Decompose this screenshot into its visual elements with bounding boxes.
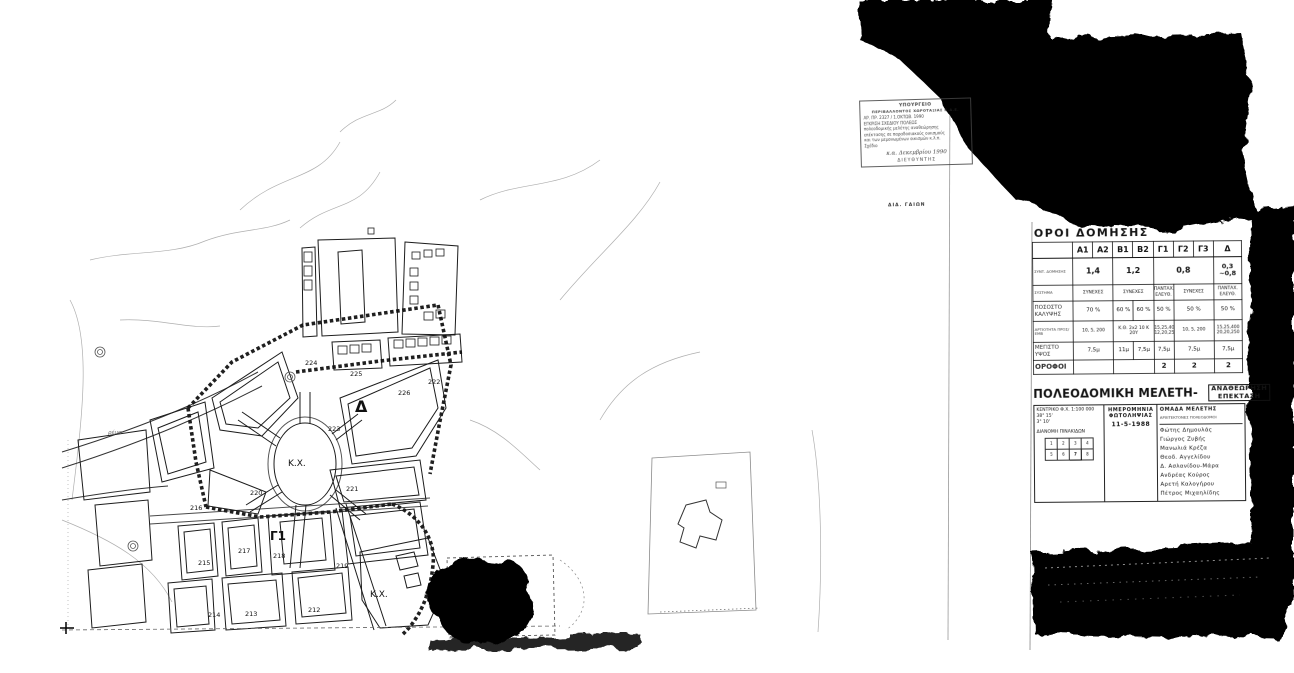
row-label: ΑΡΤΙΟΤΗΤΑ ΠΡΟΣ/ΕΜΒ [1033, 321, 1073, 342]
cell: 0,3 ~0,8 [1213, 257, 1241, 284]
cell: 7,5μ [1214, 341, 1242, 359]
block-number-label: 212 [308, 606, 320, 614]
col-header: Γ1 [1153, 241, 1173, 257]
row-label: ΜΕΓΙΣΤΟ ΥΨΟΣ [1033, 342, 1073, 360]
block-number-label: 213 [245, 610, 257, 618]
col-header: Γ2 [1173, 241, 1193, 257]
grid-cell: 3 [1069, 438, 1081, 449]
title-block-left: ΚΕΝΤΡΙΚΟ Φ.Χ. 1:100 000 38° 15' 3° 10' Δ… [1034, 405, 1105, 502]
cell: ΠΑΝΤΑΧ. ΕΛΕΥΘ. [1153, 284, 1173, 300]
photo-date-value: 11-5-1988 [1107, 422, 1155, 428]
table-row: ΜΕΓΙΣΤΟ ΥΨΟΣ 7,5μ 11μ 7,5μ 7,5μ 7,5μ 7,5… [1033, 341, 1242, 361]
block-number-label: 219 [336, 562, 348, 570]
cell: 0,8 [1153, 257, 1214, 285]
table-header-row: Α1 Α2 Β1 Β2 Γ1 Γ2 Γ3 Δ [1032, 241, 1241, 259]
cell: ΣΥΝΕΧΕΣ [1073, 285, 1113, 301]
cell: 50 % [1174, 300, 1214, 320]
grid-cell: 6 [1057, 449, 1069, 460]
cell: 7,5μ [1073, 342, 1113, 360]
corner-cell [1032, 242, 1072, 258]
block-number-label: 222 [428, 378, 440, 386]
table-row: ΣΥΝΤ. ΔΟΜΗΣΗΣ 1,4 1,2 0,8 0,3 ~0,8 [1033, 257, 1242, 286]
title-block-middle: ΗΜΕΡΟΜΗΝΙΑ ΦΩΤΟΛΗΨΙΑΣ 11-5-1988 [1105, 405, 1159, 501]
cell: 70 % [1073, 301, 1113, 321]
block-number-label: 220 [250, 489, 262, 497]
plate-index-grid: 1 2 3 4 5 6 7 8 [1045, 437, 1094, 460]
cell: Κ.Θ. 2x2 10 Κ 20Υ [1113, 320, 1153, 341]
photo-date-heading2: ΦΩΤΟΛΗΨΙΑΣ [1107, 413, 1155, 419]
block-number-label: 224 [305, 359, 317, 367]
cell: 2 [1174, 359, 1214, 373]
cell: 15,25,400 20,20,250 [1214, 320, 1242, 341]
col-header: Β1 [1113, 242, 1133, 258]
grid-row: 1 2 3 4 [1045, 438, 1093, 449]
block-number-label: 217 [238, 547, 250, 555]
team-member-list: Φώτης Δημουλάς Γιώργος Ζυβής Μανωλιά Κρέ… [1160, 423, 1243, 499]
table-row: ΠΟΣΟΣΤΟ ΚΑΛΥΨΗΣ 70 % 60 % 60 % 50 % 50 %… [1033, 300, 1242, 322]
team-member: Πέτρος Μιχαηλίδης [1160, 489, 1243, 499]
cell: 10, 5, 200 [1073, 321, 1113, 342]
team-subheading: ΑΡΧΙΤΕΚΤΟΝΕΣ ΠΟΛΕΟΔΟΜΟΙ [1160, 414, 1243, 421]
grid-cell: 5 [1045, 449, 1057, 460]
row-label: ΟΡΟΦΟΙ [1033, 360, 1073, 374]
cell: 7,5μ [1134, 341, 1154, 359]
cell: 15,25,400 12,20,250 [1154, 320, 1174, 341]
cell: 2 [1154, 359, 1174, 373]
block-number-label: 215 [198, 559, 210, 567]
scanned-urban-plan-sheet: Δ Κ.Χ. Γ1 Κ.Χ. 225 226 223 221 220 224 2… [0, 0, 1294, 673]
block-number-label: 223 [328, 425, 340, 433]
cell: 50 % [1214, 300, 1242, 320]
cell: 50 % [1154, 300, 1174, 320]
stream-label: ρέμα [108, 429, 122, 436]
zone-delta-label: Δ [355, 397, 368, 416]
block-number-label: 214 [208, 611, 220, 619]
grid-cell: 4 [1081, 438, 1093, 449]
cell: ΣΥΝΕΧΕΣ [1173, 284, 1213, 300]
grid-row: 5 6 7 8 [1045, 449, 1093, 460]
badge-line: ΕΠΕΚΤΑΣΗ [1211, 392, 1267, 400]
cell: 60 % [1133, 300, 1153, 320]
building-terms-table: Α1 Α2 Β1 Β2 Γ1 Γ2 Γ3 Δ ΣΥΝΤ. ΔΟΜΗΣΗΣ 1,4… [1032, 240, 1243, 375]
public-space-label: Κ.Χ. [288, 459, 306, 469]
cell: 7,5μ [1154, 341, 1174, 359]
block-number-label: 218 [273, 552, 285, 560]
grid-cell-selected: 7 [1069, 449, 1081, 460]
title-block-team: ΟΜΑΔΑ ΜΕΛΕΤΗΣ ΑΡΧΙΤΕΚΤΟΝΕΣ ΠΟΛΕΟΔΟΜΟΙ Φώ… [1158, 404, 1245, 501]
cell: 1,2 [1113, 257, 1153, 284]
cell: 1,4 [1073, 258, 1113, 285]
plate-index-heading: ΔΙΑΝΟΜΗ ΠΙΝΑΚΙΔΩΝ [1037, 429, 1102, 436]
row-label: ΣΥΣΤΗΜΑ [1033, 285, 1073, 301]
revision-badge: ΑΝΑΘΕΩΡΗΣΗ ΕΠΕΚΤΑΣΗ [1208, 384, 1270, 402]
cell: 2 [1214, 359, 1242, 373]
cell: ΠΑΝΤΑΧ. ΕΛΕΥΘ. [1214, 284, 1242, 300]
team-heading: ΟΜΑΔΑ ΜΕΛΕΤΗΣ [1160, 406, 1243, 413]
approval-stamp: ΥΠΟΥΡΓΕΙΟ ΠΕΡΙΒΑΛΛΟΝΤΟΣ ΧΩΡΟΤΑΞΙΑΣ Κ.Δ.Ε… [859, 97, 973, 167]
block-number-label: 226 [398, 389, 410, 397]
stamp-caption: ΔΙΔ. ΓΑΙΩΝ [888, 203, 926, 209]
col-header: Β2 [1133, 241, 1153, 257]
grid-cell: 2 [1057, 438, 1069, 449]
block-number-label: 216 [190, 504, 202, 512]
grid-cell: 1 [1045, 438, 1057, 449]
cell [1114, 359, 1154, 373]
col-header: Δ [1213, 241, 1241, 257]
longitude: 3° 10' [1036, 419, 1101, 426]
col-header: Α1 [1073, 242, 1093, 258]
building-terms-title: ΟΡΟΙ ΔΟΜΗΣΗΣ [1034, 225, 1246, 240]
row-label: ΣΥΝΤ. ΔΟΜΗΣΗΣ [1033, 258, 1073, 285]
table-row: ΣΥΣΤΗΜΑ ΣΥΝΕΧΕΣ ΣΥΝΕΧΕΣ ΠΑΝΤΑΧ. ΕΛΕΥΘ. Σ… [1033, 284, 1242, 302]
table-row: ΑΡΤΙΟΤΗΤΑ ΠΡΟΣ/ΕΜΒ 10, 5, 200 Κ.Θ. 2x2 1… [1033, 320, 1242, 343]
public-space-label-2: Κ.Χ. [370, 590, 388, 600]
row-label: ΠΟΣΟΣΤΟ ΚΑΛΥΨΗΣ [1033, 301, 1073, 321]
table-row: ΟΡΟΦΟΙ 2 2 2 [1033, 359, 1242, 375]
cell: 11μ [1114, 342, 1134, 360]
cell: 10, 5, 200 [1174, 320, 1214, 341]
legend-panel: ΟΡΟΙ ΔΟΜΗΣΗΣ Α1 Α2 Β1 Β2 Γ1 Γ2 Γ3 Δ ΣΥΝΤ… [1032, 225, 1248, 503]
cell: ΣΥΝΕΧΕΣ [1113, 284, 1153, 300]
cell: 60 % [1113, 301, 1133, 321]
cell [1074, 360, 1114, 374]
title-block: ΠΟΛΕΟΔΟΜΙΚΗ ΜΕΛΕΤΗ- ΑΝΑΘΕΩΡΗΣΗ ΕΠΕΚΤΑΣΗ … [1033, 384, 1246, 503]
cell: 7,5μ [1174, 341, 1214, 359]
block-number-label: 221 [346, 485, 358, 493]
col-header: Α2 [1093, 242, 1113, 258]
zone-gamma1-label: Γ1 [270, 529, 286, 543]
study-title: ΠΟΛΕΟΔΟΜΙΚΗ ΜΕΛΕΤΗ- [1033, 384, 1198, 400]
block-number-label: 225 [350, 370, 362, 378]
grid-cell: 8 [1081, 449, 1093, 460]
col-header: Γ3 [1193, 241, 1213, 257]
